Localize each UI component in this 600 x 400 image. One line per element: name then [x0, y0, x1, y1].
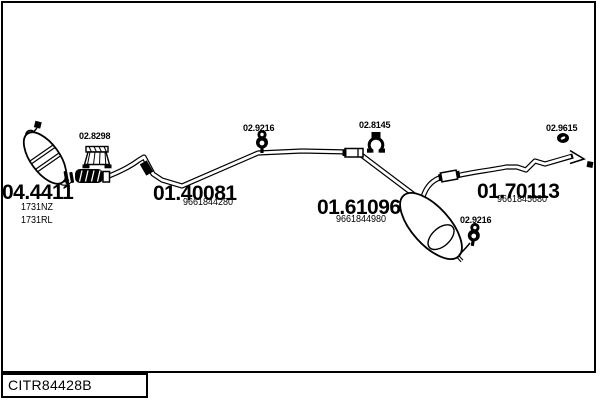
clamp-code-hanger-front: 02.9216	[243, 124, 274, 134]
tail-pipe-drawing	[456, 151, 593, 177]
diagram-id-box: CITR84428B	[1, 373, 148, 398]
part-ref-catalyst-1: 1731NZ	[21, 203, 53, 213]
part-ref-tail-pipe: 9661845680	[497, 195, 547, 205]
rubber-grommet-icon	[557, 133, 569, 143]
mounting-bracket-icon	[83, 147, 112, 169]
clamp-code-clamp-mid: 02.8145	[359, 121, 390, 131]
clamp-code-grommet-rear: 02.9615	[546, 124, 577, 134]
exhaust-diagram: 04.4411 1731NZ 1731RL 01.40081 966184428…	[0, 0, 600, 400]
pipe-joint-sleeve	[343, 149, 364, 158]
part-ref-front-pipe: 9661844280	[183, 198, 233, 208]
part-code-catalyst: 04.4411	[2, 182, 73, 203]
clamp-code-hanger-rear: 02.9216	[460, 216, 491, 226]
part-ref-rear-silencer: 9661844980	[336, 215, 386, 225]
tailpipe-sleeve	[438, 170, 461, 183]
pipe-clamp-icon	[367, 132, 385, 154]
clamp-code-bracket: 02.8298	[79, 132, 110, 142]
tailpipe-end-marker	[587, 161, 594, 168]
part-ref-catalyst-2: 1731RL	[21, 216, 53, 226]
sensor-port-icon	[34, 121, 42, 129]
diagram-id: CITR84428B	[8, 377, 92, 393]
